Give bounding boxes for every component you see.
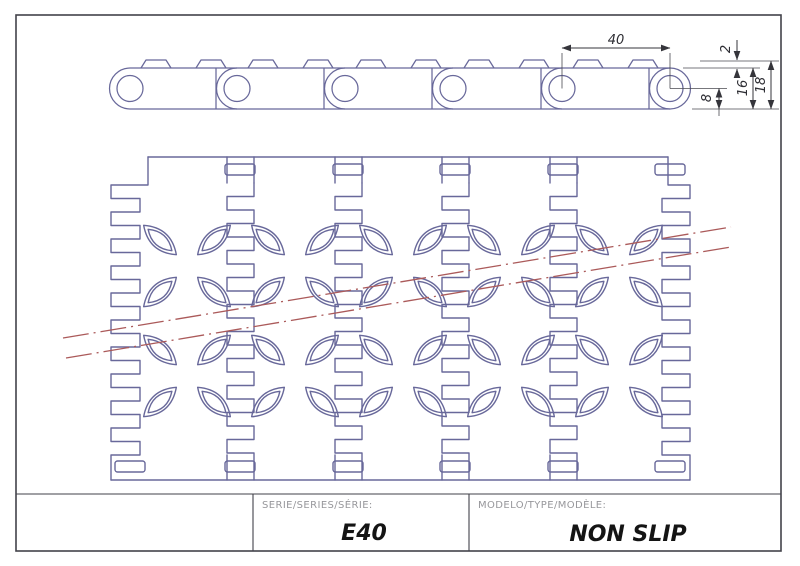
leaf-grip	[354, 381, 398, 423]
leaf-grip	[408, 219, 452, 261]
leaf-grip	[138, 329, 182, 371]
model-value: NON SLIP	[569, 522, 686, 547]
leaf-grip	[192, 381, 236, 423]
leaf-grip	[408, 329, 452, 371]
leaf-grip	[300, 381, 344, 423]
leaf-grip	[354, 329, 398, 371]
leaf-grip	[138, 381, 182, 423]
leaf-grip	[300, 329, 344, 371]
title-block: SERIE/SERIES/SÉRIE: E40 MODELO/TYPE/MODÈ…	[16, 494, 781, 551]
dim-hole-offset: 8	[700, 94, 715, 102]
leaf-grip	[246, 219, 290, 261]
drawing-page: 40 2 16 18 8 SERIE/SERIES/SÉRIE: E40 MOD…	[0, 0, 800, 566]
leaf-grip	[354, 219, 398, 261]
dimension-lines	[562, 40, 771, 109]
leaf-grip	[138, 271, 182, 313]
dim-pitch: 40	[608, 33, 625, 48]
leaf-grip	[516, 219, 560, 261]
leaf-grip	[246, 329, 290, 371]
plan-view-belt-modules	[111, 157, 690, 480]
leaf-grip	[516, 329, 560, 371]
model-label: MODELO/TYPE/MODÈLE:	[478, 498, 606, 511]
dimension-annotations: 40 2 16 18 8	[562, 33, 779, 116]
dim-tab-height: 2	[719, 45, 734, 53]
leaf-grip	[300, 219, 344, 261]
leaf-grip	[138, 219, 182, 261]
dim-body-height: 16	[736, 80, 751, 97]
dim-total-height: 18	[754, 77, 769, 94]
side-view-chain-links	[110, 60, 691, 109]
red-centerline	[66, 247, 731, 358]
series-label: SERIE/SERIES/SÉRIE:	[262, 498, 373, 511]
drawing-canvas: 40 2 16 18 8 SERIE/SERIES/SÉRIE: E40 MOD…	[0, 0, 800, 566]
leaf-grip	[408, 381, 452, 423]
centerlines	[63, 227, 731, 358]
drawing-frame	[16, 15, 781, 551]
series-value: E40	[341, 521, 387, 546]
leaf-grip	[246, 381, 290, 423]
leaf-grip	[516, 381, 560, 423]
leaf-grip	[192, 219, 236, 261]
